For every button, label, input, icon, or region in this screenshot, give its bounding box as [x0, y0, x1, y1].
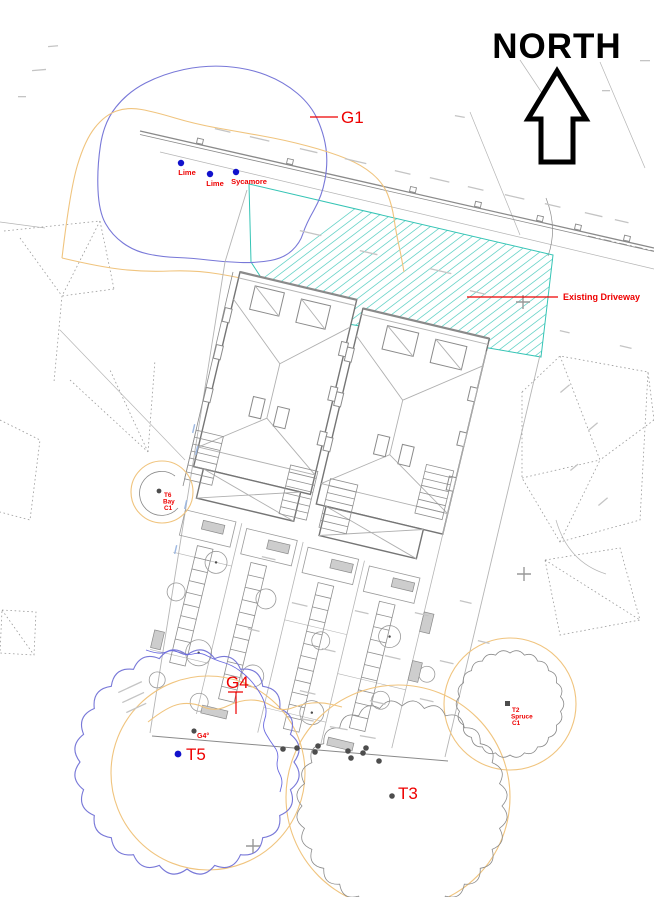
rpa-orange-g1-road	[62, 109, 404, 272]
tree-t6-stem	[157, 489, 162, 494]
tree-t2-stem	[505, 701, 510, 706]
neighbor-buildings-right	[522, 356, 654, 635]
garden-path	[349, 601, 395, 731]
canopy-spread-line-g4	[148, 700, 342, 722]
lime-1-label: Lime	[178, 168, 196, 177]
tree-point-lime-2	[207, 171, 213, 177]
dimension-ticks-blue	[174, 424, 198, 554]
site-plan-page: { "north": { "label": "NORTH" }, "labels…	[0, 0, 654, 897]
g1-label: G1	[341, 108, 364, 127]
tree-t6-canopy	[140, 471, 178, 515]
north-label: NORTH	[492, 27, 621, 66]
g4-stem-label: G4°	[197, 732, 209, 740]
site-plan-drawing: G1 Existing Driveway Lime Lime Sycamore …	[0, 0, 654, 897]
survey-cross-icon	[517, 567, 531, 581]
existing-driveway-label: Existing Driveway	[563, 292, 640, 302]
sycamore-label: Sycamore	[231, 177, 267, 186]
tree-point-t5	[175, 751, 182, 758]
garden-path	[283, 583, 333, 733]
t3-label: T3	[398, 784, 418, 803]
t5-label: T5	[186, 745, 206, 764]
rpa-orange-t6	[131, 461, 193, 523]
proposed-buildings-and-gardens	[131, 271, 515, 770]
lime-2-label: Lime	[206, 179, 224, 188]
blue-service-line	[146, 650, 282, 792]
svg-text:C1: C1	[512, 720, 521, 727]
svg-text:C1: C1	[164, 505, 173, 512]
tree-point-lime-1	[178, 160, 184, 166]
survey-cross-icon	[246, 839, 260, 853]
g4-label: G4	[226, 673, 249, 692]
t2-label: T2 Spruce C1	[511, 707, 533, 727]
tree-point-sycamore	[233, 169, 239, 175]
road-linework	[140, 131, 654, 269]
neighbor-buildings-left	[0, 221, 185, 655]
g4-stem-dot	[191, 728, 196, 733]
tree-t3-stem	[389, 793, 395, 799]
north-indicator: NORTH	[492, 27, 621, 162]
g4-leader-line	[228, 692, 243, 714]
garden-path	[170, 546, 213, 666]
t6-label: T6 Bay C1	[163, 492, 175, 512]
